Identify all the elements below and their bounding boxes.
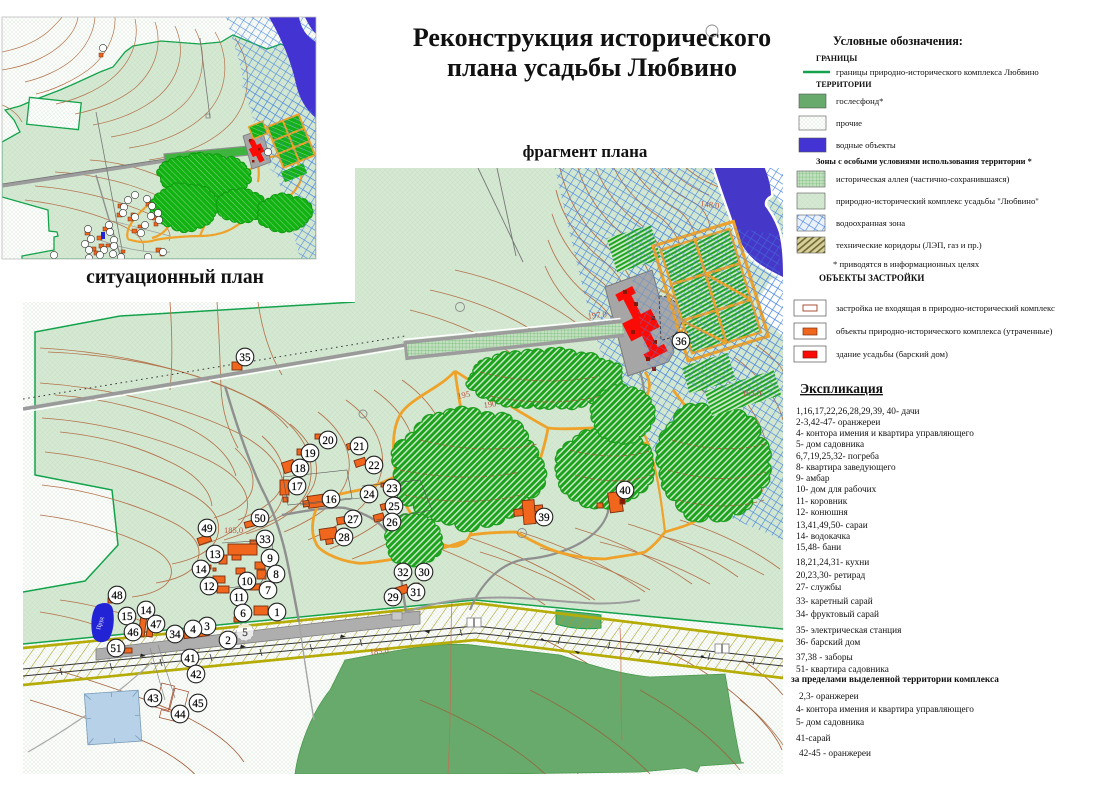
svg-text:Экспликация: Экспликация (800, 381, 883, 396)
svg-text:27: 27 (347, 514, 359, 526)
svg-text:Реконструкция исторического: Реконструкция исторического (413, 23, 771, 52)
svg-text:50: 50 (254, 513, 266, 525)
svg-text:48: 48 (111, 590, 123, 602)
svg-text:22: 22 (368, 460, 379, 472)
svg-text:41: 41 (184, 653, 195, 665)
svg-text:9: 9 (267, 553, 273, 565)
svg-text:35- электрическая станция: 35- электрическая станция (796, 626, 902, 636)
svg-text:6: 6 (240, 608, 246, 620)
svg-text:42: 42 (190, 669, 201, 681)
svg-text:33: 33 (259, 534, 271, 546)
svg-text:водоохранная зона: водоохранная зона (836, 218, 905, 228)
svg-text:26: 26 (386, 517, 398, 529)
svg-text:46: 46 (127, 627, 139, 639)
svg-text:51- квартира садовника: 51- квартира садовника (796, 665, 889, 675)
svg-text:35: 35 (239, 352, 251, 364)
svg-text:1: 1 (274, 607, 280, 619)
svg-text:природно-исторический комплекс: природно-исторический комплекс усадьбы "… (836, 196, 1039, 206)
svg-text:ГРАНИЦЫ: ГРАНИЦЫ (816, 54, 857, 63)
svg-text:13,41,49,50- сараи: 13,41,49,50- сараи (796, 521, 868, 531)
svg-text:2-3,42-47- оранжереи: 2-3,42-47- оранжереи (796, 418, 880, 428)
svg-text:5- дом садовника: 5- дом садовника (796, 440, 864, 450)
svg-text:11- коровник: 11- коровник (796, 497, 848, 507)
svg-text:36- барский дом: 36- барский дом (796, 637, 860, 648)
svg-text:19: 19 (304, 448, 316, 460)
svg-text:49: 49 (201, 523, 213, 535)
svg-text:ТЕРРИТОРИИ: ТЕРРИТОРИИ (816, 80, 872, 89)
svg-text:18: 18 (294, 463, 306, 475)
svg-text:34- фруктовый сарай: 34- фруктовый сарай (796, 609, 879, 620)
svg-text:20: 20 (322, 435, 334, 447)
svg-text:44: 44 (174, 709, 186, 721)
svg-text:25: 25 (388, 501, 400, 513)
svg-text:ОБЪЕКТЫ ЗАСТРОЙКИ: ОБЪЕКТЫ ЗАСТРОЙКИ (819, 273, 924, 283)
svg-text:37,38 - заборы: 37,38 - заборы (796, 652, 853, 663)
svg-text:5: 5 (242, 627, 248, 639)
svg-text:плана усадьбы Любвино: плана усадьбы Любвино (447, 53, 737, 82)
svg-text:40: 40 (619, 485, 631, 497)
svg-text:31: 31 (410, 587, 421, 599)
svg-text:4: 4 (190, 624, 196, 636)
svg-text:гослесфонд*: гослесфонд* (836, 96, 884, 106)
svg-text:197.0: 197.0 (587, 309, 607, 321)
svg-text:14: 14 (140, 605, 152, 617)
svg-text:34: 34 (169, 629, 181, 641)
svg-text:фрагмент плана: фрагмент плана (523, 142, 648, 161)
svg-text:165.0: 165.0 (742, 388, 761, 398)
svg-text:2: 2 (225, 635, 231, 647)
svg-text:33- каретный сарай: 33- каретный сарай (796, 596, 873, 607)
svg-text:водные объекты: водные объекты (836, 140, 896, 150)
svg-text:45: 45 (192, 698, 204, 710)
svg-text:23: 23 (386, 483, 398, 495)
svg-text:5- дом садовника: 5- дом садовника (796, 718, 864, 728)
svg-text:15: 15 (121, 611, 133, 623)
svg-text:здание усадьбы (барский дом): здание усадьбы (барский дом) (836, 349, 948, 359)
svg-text:47: 47 (150, 619, 162, 631)
svg-text:12- конюшня: 12- конюшня (796, 508, 848, 518)
svg-text:ситуационный план: ситуационный план (86, 267, 264, 288)
svg-text:28: 28 (338, 532, 350, 544)
svg-text:24: 24 (363, 489, 375, 501)
svg-text:12: 12 (203, 581, 214, 593)
svg-text:3: 3 (204, 621, 210, 633)
svg-text:29: 29 (387, 592, 399, 604)
svg-text:10- дом для рабочих: 10- дом для рабочих (796, 484, 877, 495)
svg-text:7: 7 (265, 585, 271, 597)
svg-text:18,21,24,31- кухни: 18,21,24,31- кухни (796, 558, 869, 568)
svg-text:1,16,17,22,26,28,29,39, 40- да: 1,16,17,22,26,28,29,39, 40- дачи (796, 407, 920, 417)
svg-text:185,0: 185,0 (224, 525, 243, 535)
svg-text:10: 10 (241, 576, 253, 588)
svg-text:прочие: прочие (836, 118, 862, 128)
svg-text:21: 21 (353, 441, 364, 453)
svg-text:объекты природно-исторического: объекты природно-исторического комплекса… (836, 326, 1052, 336)
svg-text:32: 32 (397, 567, 408, 579)
svg-text:технические коридоры (ЛЭП, газ: технические коридоры (ЛЭП, газ и пр.) (836, 240, 982, 250)
svg-text:14: 14 (195, 564, 207, 576)
svg-text:8- квартира заведующего: 8- квартира заведующего (796, 463, 896, 473)
svg-text:2,3- оранжереи: 2,3- оранжереи (799, 692, 859, 702)
svg-text:190: 190 (483, 398, 497, 410)
svg-text:42-45 - оранжереи: 42-45 - оранжереи (799, 749, 871, 759)
svg-text:* приводятся в информационны: * приводятся в информационных целях (833, 259, 980, 269)
svg-text:4- контора имения и квартира у: 4- контора имения и квартира управляющег… (796, 705, 974, 715)
svg-text:8: 8 (273, 569, 279, 581)
svg-text:20,23,30- ретирад: 20,23,30- ретирад (796, 571, 866, 581)
svg-text:6,7,19,25,32- погреба: 6,7,19,25,32- погреба (796, 451, 879, 462)
svg-text:4- контора имения и квартира у: 4- контора имения и квартира управляющег… (796, 429, 974, 439)
svg-text:16: 16 (325, 494, 337, 506)
svg-text:Зоны с особыми условиями испол: Зоны с особыми условиями использования т… (816, 157, 1032, 166)
svg-text:11: 11 (234, 592, 245, 604)
svg-text:30: 30 (418, 567, 430, 579)
svg-text:43: 43 (147, 693, 159, 705)
svg-text:36: 36 (675, 336, 687, 348)
svg-text:51: 51 (110, 643, 121, 655)
svg-text:13: 13 (209, 549, 221, 561)
svg-text:17: 17 (291, 481, 303, 493)
svg-text:за пределами выделенной террит: за пределами выделенной территории компл… (791, 674, 999, 685)
svg-text:185,0: 185,0 (369, 645, 389, 657)
svg-text:историческая аллея (частично-с: историческая аллея (частично-сохранившая… (836, 174, 1010, 184)
svg-text:39: 39 (538, 512, 550, 524)
svg-text:границы природно-исторического: границы природно-исторического комплекса… (836, 67, 1039, 77)
svg-text:15,48- бани: 15,48- бани (796, 542, 841, 553)
svg-text:14- водокачка: 14- водокачка (796, 532, 850, 542)
svg-text:27- службы: 27- службы (796, 582, 842, 593)
svg-text:застройка не входящая в природ: застройка не входящая в природно-историч… (836, 303, 1055, 313)
svg-text:41-сарай: 41-сарай (796, 733, 831, 744)
svg-text:9- амбар: 9- амбар (796, 473, 830, 484)
svg-text:Условные обозначения:: Условные обозначения: (833, 34, 963, 48)
